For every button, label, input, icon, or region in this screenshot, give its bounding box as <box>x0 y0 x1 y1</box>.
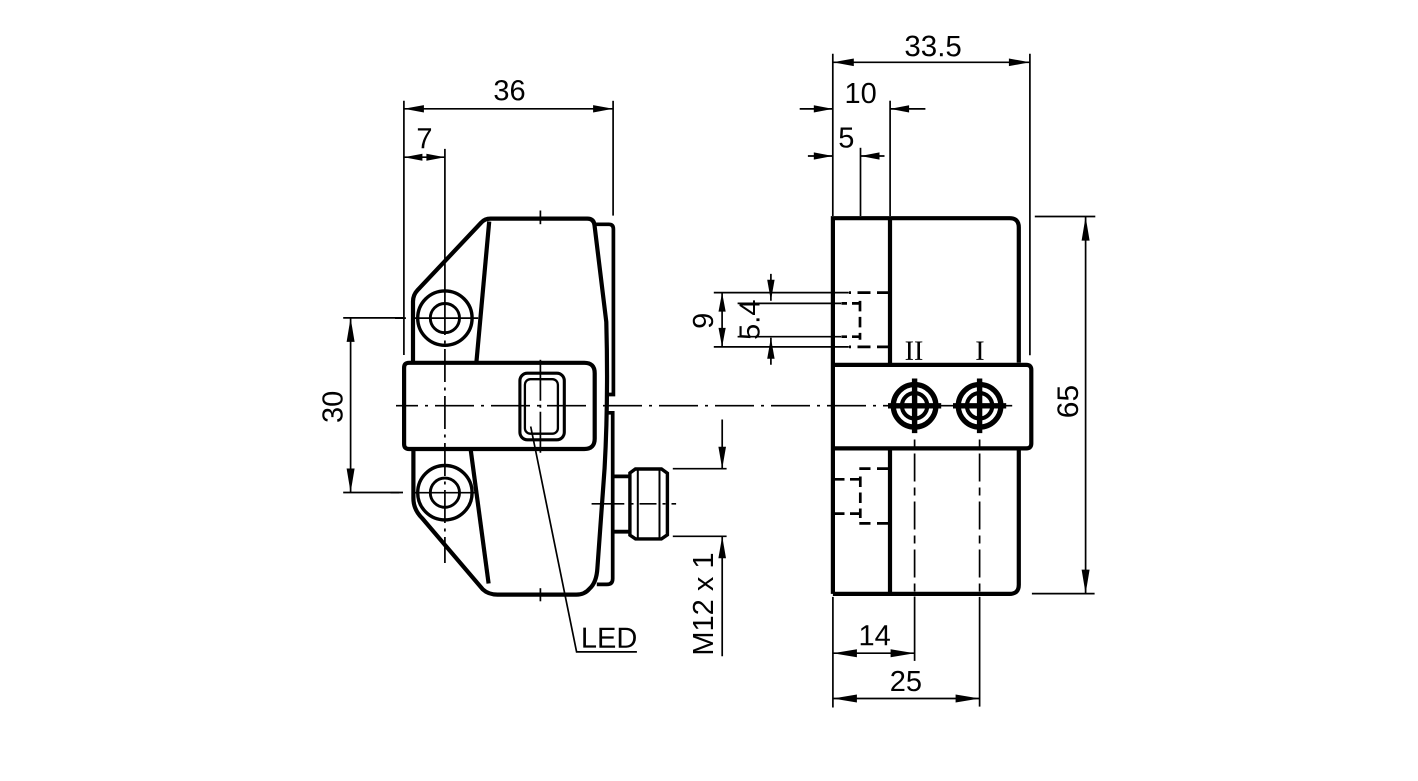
svg-text:30: 30 <box>318 391 350 423</box>
svg-text:33.5: 33.5 <box>904 30 961 63</box>
svg-text:7: 7 <box>416 123 432 155</box>
svg-text:10: 10 <box>844 78 876 110</box>
svg-text:M12 x 1: M12 x 1 <box>688 552 720 655</box>
svg-text:LED: LED <box>581 623 637 655</box>
svg-text:36: 36 <box>493 75 525 107</box>
svg-text:9: 9 <box>688 313 720 329</box>
svg-text:5.4: 5.4 <box>734 300 766 340</box>
svg-text:II: II <box>905 336 924 367</box>
svg-text:65: 65 <box>1052 385 1085 418</box>
svg-text:25: 25 <box>890 666 922 698</box>
svg-text:I: I <box>975 336 984 367</box>
svg-text:5: 5 <box>838 122 854 154</box>
svg-text:14: 14 <box>858 620 890 652</box>
